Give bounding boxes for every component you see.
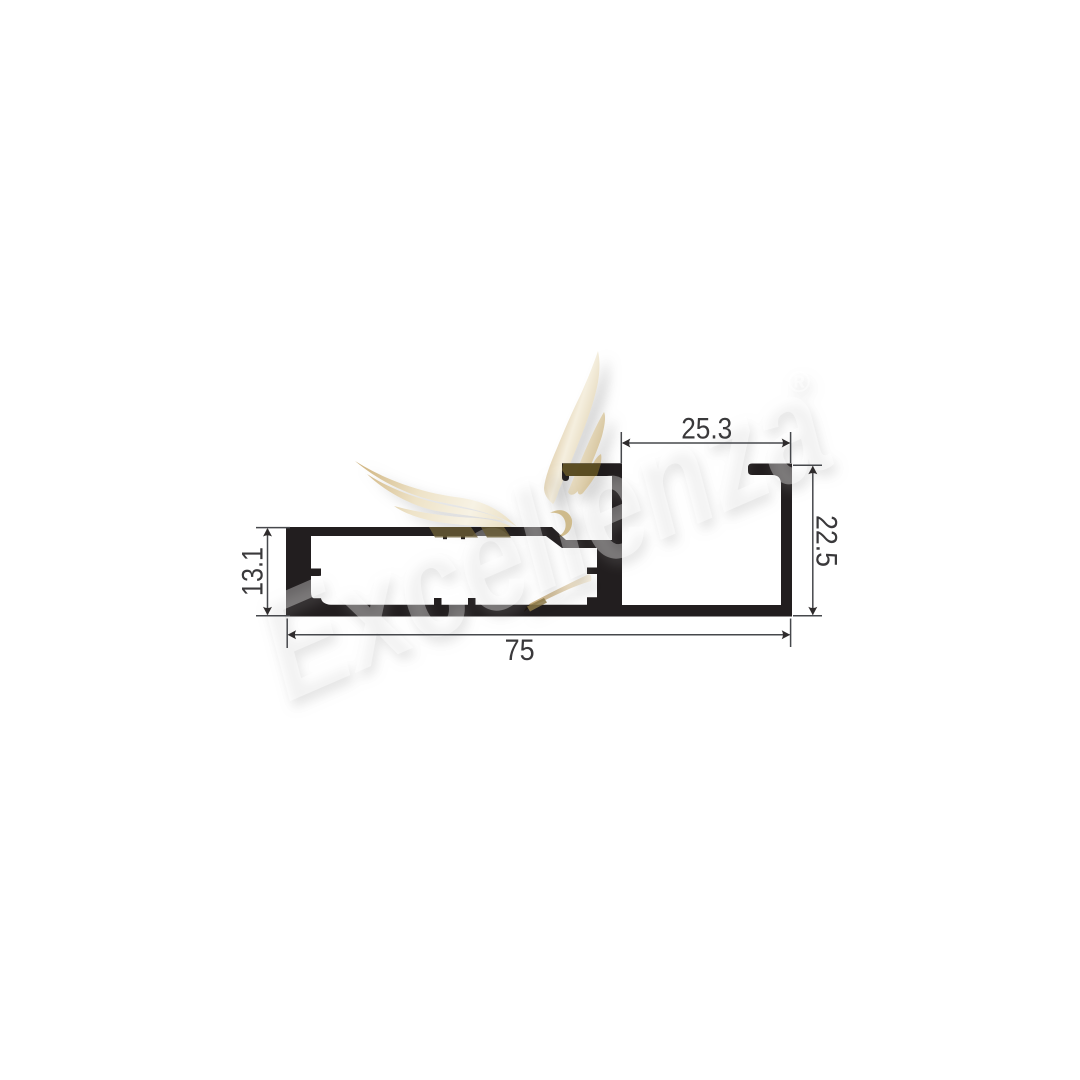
svg-text:25.3: 25.3 xyxy=(681,413,732,446)
svg-text:22.5: 22.5 xyxy=(810,515,843,567)
svg-text:®: ® xyxy=(788,366,810,399)
svg-text:13.1: 13.1 xyxy=(237,547,270,596)
svg-text:75: 75 xyxy=(505,634,535,667)
